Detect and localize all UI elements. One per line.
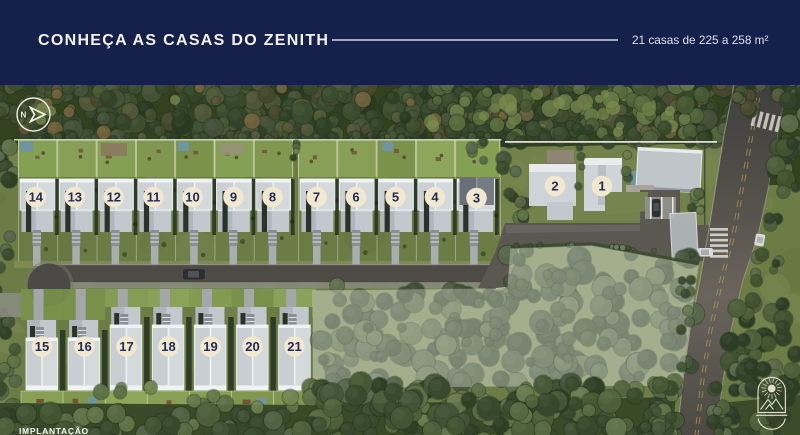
- svg-text:14: 14: [29, 190, 44, 205]
- svg-text:5: 5: [392, 190, 399, 205]
- svg-text:3: 3: [473, 191, 480, 206]
- svg-text:13: 13: [68, 190, 82, 205]
- svg-text:21: 21: [287, 339, 301, 354]
- svg-text:4: 4: [431, 190, 439, 205]
- svg-text:1: 1: [598, 179, 605, 194]
- svg-text:17: 17: [119, 339, 133, 354]
- svg-text:N: N: [21, 111, 27, 120]
- svg-text:20: 20: [245, 339, 259, 354]
- svg-text:19: 19: [203, 339, 217, 354]
- svg-text:11: 11: [147, 190, 161, 205]
- svg-text:10: 10: [185, 190, 199, 205]
- svg-text:6: 6: [352, 190, 359, 205]
- svg-text:7: 7: [313, 190, 320, 205]
- svg-text:8: 8: [269, 190, 276, 205]
- svg-text:9: 9: [230, 190, 237, 205]
- svg-text:15: 15: [35, 339, 49, 354]
- svg-text:18: 18: [161, 339, 175, 354]
- svg-text:16: 16: [77, 339, 91, 354]
- svg-text:2: 2: [551, 179, 558, 194]
- svg-text:12: 12: [107, 190, 121, 205]
